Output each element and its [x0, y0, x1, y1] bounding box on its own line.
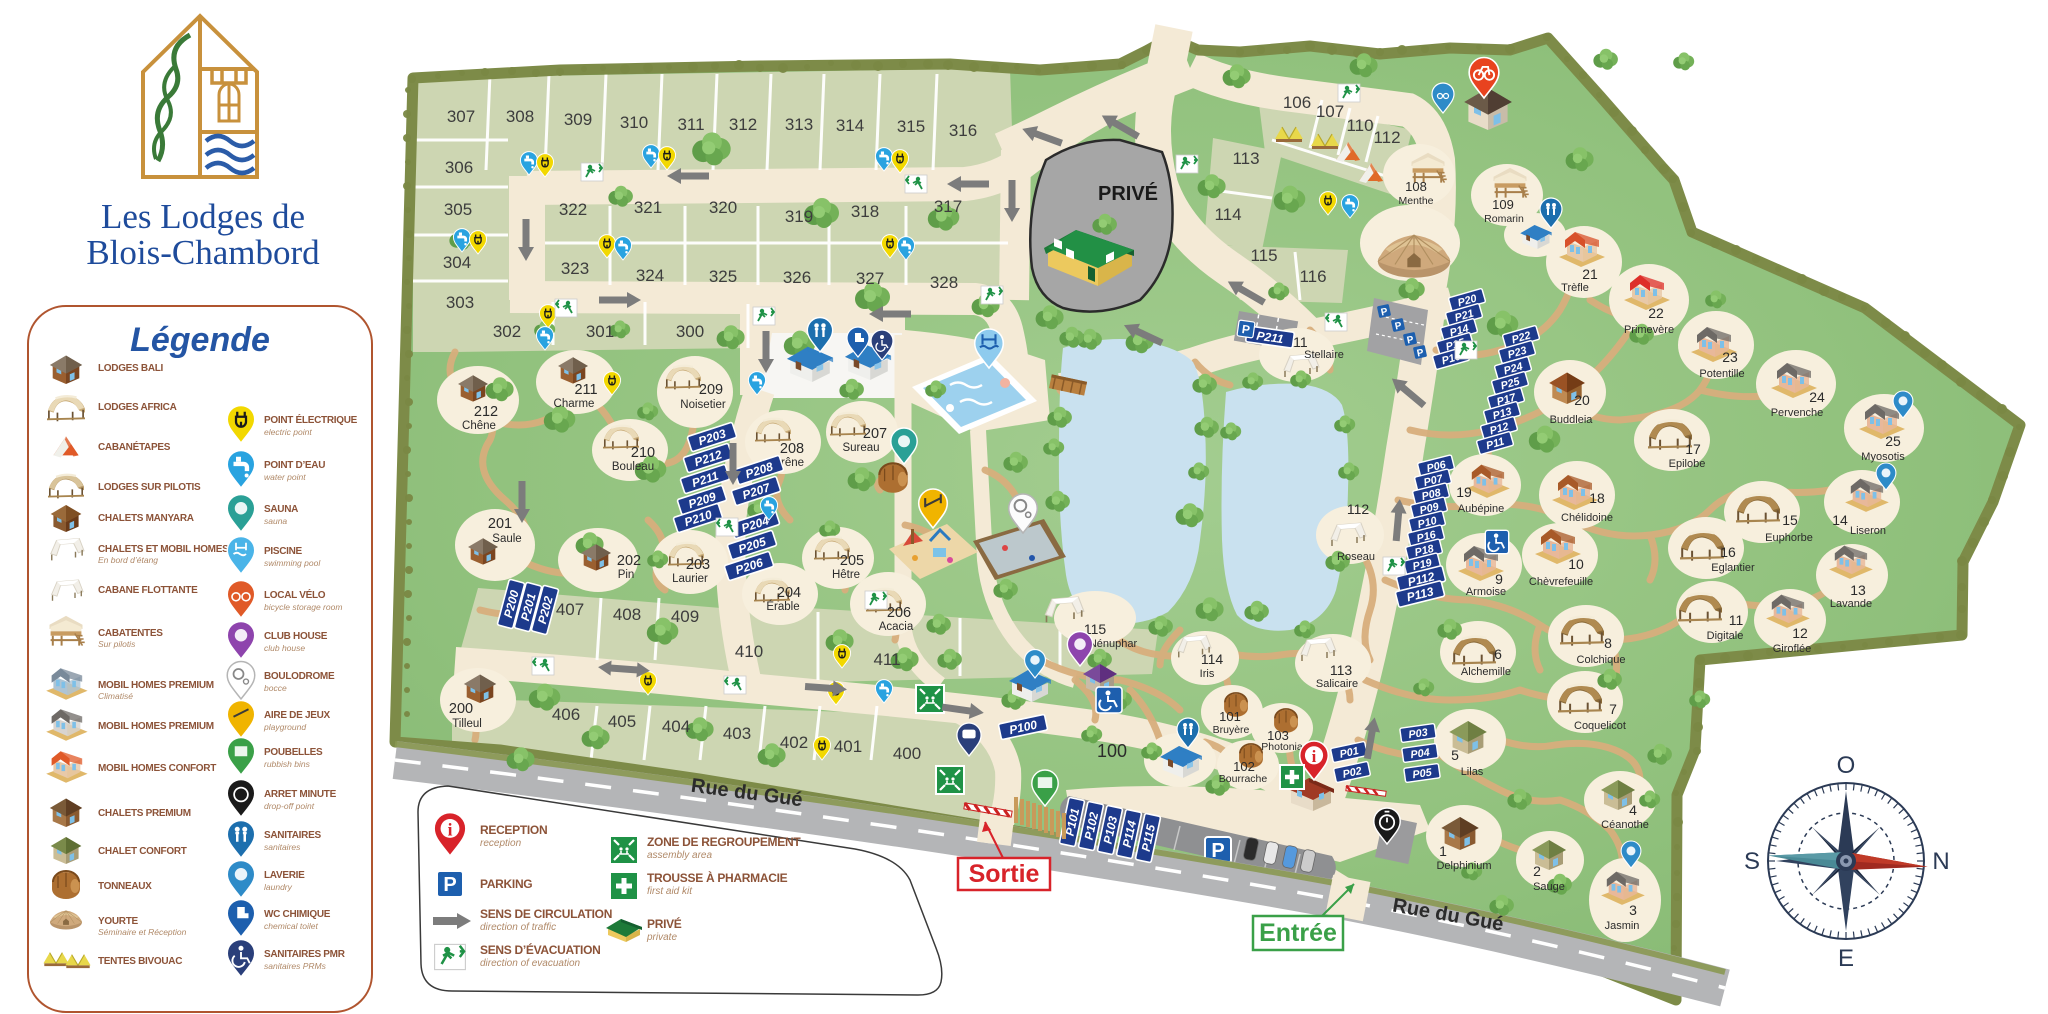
svg-text:Pervenche: Pervenche — [1771, 407, 1824, 419]
svg-text:SANITAIRES: SANITAIRES — [264, 830, 321, 841]
svg-text:CABATENTES: CABATENTES — [98, 628, 163, 639]
svg-text:304: 304 — [443, 253, 471, 272]
svg-text:Céanothe: Céanothe — [1601, 819, 1649, 831]
svg-text:323: 323 — [561, 259, 589, 278]
svg-text:E: E — [1838, 945, 1854, 972]
svg-text:Hêtre: Hêtre — [832, 569, 860, 581]
svg-text:Érable: Érable — [766, 600, 799, 613]
svg-text:401: 401 — [834, 737, 862, 756]
svg-text:SENS DE CIRCULATION: SENS DE CIRCULATION — [480, 907, 612, 921]
svg-text:YOURTE: YOURTE — [98, 916, 139, 927]
svg-text:301: 301 — [586, 322, 614, 341]
svg-text:N: N — [1932, 848, 1949, 875]
svg-text:14: 14 — [1832, 512, 1848, 528]
svg-text:bocce: bocce — [264, 683, 287, 693]
svg-text:324: 324 — [636, 266, 664, 285]
svg-text:Myosotis: Myosotis — [1861, 451, 1905, 463]
svg-text:Légende: Légende — [130, 321, 270, 359]
svg-text:PISCINE: PISCINE — [264, 546, 303, 557]
svg-text:322: 322 — [559, 200, 587, 219]
svg-text:POINT D’EAU: POINT D’EAU — [264, 460, 325, 471]
svg-text:POUBELLES: POUBELLES — [264, 747, 323, 758]
svg-text:Pin: Pin — [618, 569, 635, 581]
svg-text:305: 305 — [444, 200, 472, 219]
svg-text:203: 203 — [686, 557, 710, 573]
svg-text:206: 206 — [887, 605, 911, 621]
svg-text:20: 20 — [1574, 392, 1590, 408]
svg-text:SENS D’ÉVACUATION: SENS D’ÉVACUATION — [480, 942, 600, 957]
svg-text:drop-off point: drop-off point — [264, 801, 315, 811]
svg-text:PRIVÉ: PRIVÉ — [1098, 182, 1158, 205]
svg-text:114: 114 — [1214, 205, 1241, 224]
svg-text:Lavande: Lavande — [1830, 598, 1872, 610]
svg-text:MOBIL HOMES PREMIUM: MOBIL HOMES PREMIUM — [98, 721, 214, 732]
svg-text:7: 7 — [1609, 701, 1617, 717]
svg-text:laundry: laundry — [264, 882, 293, 892]
svg-text:306: 306 — [445, 158, 473, 177]
svg-text:313: 313 — [785, 115, 813, 134]
svg-text:12: 12 — [1792, 625, 1808, 641]
svg-text:Trèfle: Trèfle — [1561, 282, 1589, 294]
svg-text:328: 328 — [930, 273, 958, 292]
svg-text:316: 316 — [949, 121, 977, 140]
svg-text:ZONE DE REGROUPEMENT: ZONE DE REGROUPEMENT — [647, 835, 801, 849]
svg-text:410: 410 — [735, 642, 763, 661]
svg-text:Colchique: Colchique — [1577, 654, 1626, 666]
svg-text:playground: playground — [263, 722, 306, 732]
svg-text:Potentille: Potentille — [1699, 368, 1744, 380]
svg-text:Les Lodges de: Les Lodges de — [101, 197, 305, 236]
svg-text:307: 307 — [447, 107, 475, 126]
svg-text:Laurier: Laurier — [672, 573, 708, 585]
svg-text:3: 3 — [1629, 902, 1637, 918]
svg-text:Chélidoine: Chélidoine — [1561, 512, 1613, 524]
svg-text:MOBIL HOMES PREMIUM: MOBIL HOMES PREMIUM — [98, 680, 214, 691]
svg-text:i: i — [448, 820, 453, 840]
svg-text:Stellaire: Stellaire — [1304, 349, 1344, 361]
svg-text:204: 204 — [777, 585, 801, 601]
svg-text:309: 309 — [564, 110, 592, 129]
svg-text:24: 24 — [1809, 389, 1825, 405]
svg-text:107: 107 — [1316, 102, 1344, 121]
svg-text:Digitale: Digitale — [1707, 630, 1744, 642]
svg-text:406: 406 — [552, 705, 580, 724]
svg-text:bicycle storage room: bicycle storage room — [264, 602, 342, 612]
svg-text:Menthe: Menthe — [1398, 195, 1433, 207]
svg-text:POINT ÉLECTRIQUE: POINT ÉLECTRIQUE — [264, 413, 358, 426]
svg-text:swimming pool: swimming pool — [264, 558, 321, 568]
svg-text:403: 403 — [723, 724, 751, 743]
svg-text:CHALET CONFORT: CHALET CONFORT — [98, 846, 187, 857]
svg-text:112: 112 — [1373, 128, 1400, 147]
svg-text:409: 409 — [671, 607, 699, 626]
svg-text:102: 102 — [1233, 759, 1255, 774]
svg-text:208: 208 — [780, 441, 804, 457]
svg-text:202: 202 — [617, 553, 641, 569]
svg-text:Giroflée: Giroflée — [1773, 643, 1812, 655]
svg-text:Noisetier: Noisetier — [680, 399, 726, 411]
svg-text:Climatisé: Climatisé — [98, 691, 133, 701]
svg-text:21: 21 — [1582, 266, 1598, 282]
svg-text:Iris: Iris — [1200, 668, 1215, 680]
svg-text:Armoise: Armoise — [1466, 586, 1506, 598]
svg-text:116: 116 — [1299, 267, 1326, 286]
svg-text:108: 108 — [1405, 179, 1427, 194]
svg-text:CHALETS PREMIUM: CHALETS PREMIUM — [98, 808, 191, 819]
svg-text:Buddleia: Buddleia — [1550, 414, 1594, 426]
svg-text:18: 18 — [1589, 490, 1605, 506]
svg-text:207: 207 — [863, 426, 887, 442]
svg-text:TROUSSE À PHARMACIE: TROUSSE À PHARMACIE — [647, 870, 788, 885]
svg-text:405: 405 — [608, 712, 636, 731]
svg-text:Salicaire: Salicaire — [1316, 678, 1358, 690]
svg-text:En bord d’étang: En bord d’étang — [98, 555, 158, 565]
svg-text:Epilobe: Epilobe — [1669, 458, 1706, 470]
svg-text:110: 110 — [1346, 116, 1373, 135]
svg-text:402: 402 — [780, 733, 808, 752]
svg-text:BOULODROME: BOULODROME — [264, 671, 335, 682]
svg-text:Acacia: Acacia — [879, 621, 914, 633]
svg-text:302: 302 — [493, 322, 521, 341]
svg-text:Entrée: Entrée — [1259, 919, 1337, 947]
svg-text:LOCAL VÉLO: LOCAL VÉLO — [264, 588, 326, 601]
svg-text:326: 326 — [783, 268, 811, 287]
svg-text:Romarin: Romarin — [1484, 213, 1524, 225]
svg-text:Charme: Charme — [554, 398, 595, 410]
svg-text:15: 15 — [1782, 512, 1798, 528]
svg-text:310: 310 — [620, 113, 648, 132]
svg-text:Lilas: Lilas — [1461, 766, 1484, 778]
svg-text:Sur pilotis: Sur pilotis — [98, 639, 136, 649]
svg-text:WC CHIMIQUE: WC CHIMIQUE — [264, 909, 331, 920]
svg-text:22: 22 — [1648, 305, 1664, 321]
svg-text:LODGES AFRICA: LODGES AFRICA — [98, 402, 177, 413]
svg-text:CHALETS MANYARA: CHALETS MANYARA — [98, 513, 194, 524]
svg-text:Jasmin: Jasmin — [1605, 920, 1640, 932]
svg-text:TONNEAUX: TONNEAUX — [98, 881, 152, 892]
svg-text:321: 321 — [634, 198, 662, 217]
svg-text:109: 109 — [1492, 197, 1514, 212]
svg-text:CABANÉTAPES: CABANÉTAPES — [98, 440, 171, 453]
svg-text:106: 106 — [1283, 93, 1311, 112]
svg-text:first aid kit: first aid kit — [647, 886, 693, 897]
svg-text:PARKING: PARKING — [480, 877, 532, 891]
svg-text:rubbish bins: rubbish bins — [264, 759, 311, 769]
svg-text:Bruyère: Bruyère — [1213, 724, 1250, 736]
svg-text:16: 16 — [1720, 544, 1736, 560]
svg-text:Chèvrefeuille: Chèvrefeuille — [1529, 576, 1593, 588]
svg-text:113: 113 — [1330, 662, 1353, 678]
svg-text:MOBIL HOMES CONFORT: MOBIL HOMES CONFORT — [98, 763, 216, 774]
svg-text:Nénuphar: Nénuphar — [1089, 638, 1138, 650]
svg-text:S: S — [1744, 848, 1760, 875]
svg-text:308: 308 — [506, 107, 534, 126]
svg-text:201: 201 — [488, 516, 512, 532]
svg-text:P: P — [443, 874, 456, 896]
svg-text:Bouleau: Bouleau — [612, 461, 654, 473]
svg-text:O: O — [1837, 752, 1856, 779]
svg-text:17: 17 — [1685, 441, 1701, 457]
svg-text:300: 300 — [676, 322, 704, 341]
svg-text:114: 114 — [1201, 651, 1224, 667]
svg-text:Saule: Saule — [492, 533, 521, 545]
svg-text:5: 5 — [1451, 747, 1459, 763]
svg-text:Alchemille: Alchemille — [1461, 666, 1511, 678]
svg-text:SAUNA: SAUNA — [264, 504, 298, 515]
svg-text:407: 407 — [556, 600, 584, 619]
svg-text:210: 210 — [631, 445, 655, 461]
svg-text:318: 318 — [851, 202, 879, 221]
svg-text:209: 209 — [699, 382, 723, 398]
svg-text:320: 320 — [709, 198, 737, 217]
svg-text:10: 10 — [1568, 556, 1584, 572]
svg-text:SANITAIRES PMR: SANITAIRES PMR — [264, 949, 346, 960]
svg-text:sanitaires: sanitaires — [264, 842, 301, 852]
svg-text:317: 317 — [934, 197, 962, 216]
svg-text:303: 303 — [446, 293, 474, 312]
svg-text:CABANE FLOTTANTE: CABANE FLOTTANTE — [98, 585, 198, 596]
svg-text:Liseron: Liseron — [1850, 525, 1886, 537]
svg-text:311: 311 — [677, 115, 704, 134]
svg-text:9: 9 — [1495, 571, 1503, 587]
svg-text:101: 101 — [1219, 709, 1241, 724]
svg-text:water point: water point — [264, 472, 306, 482]
svg-text:club house: club house — [264, 643, 305, 653]
svg-text:211: 211 — [574, 382, 597, 398]
svg-text:112: 112 — [1347, 501, 1370, 517]
svg-text:23: 23 — [1722, 349, 1738, 365]
svg-text:319: 319 — [785, 207, 813, 226]
svg-text:Photonia: Photonia — [1261, 741, 1303, 753]
svg-text:sauna: sauna — [264, 516, 287, 526]
svg-text:i: i — [1312, 747, 1317, 766]
svg-text:Delphinium: Delphinium — [1436, 860, 1491, 872]
svg-text:Roseau: Roseau — [1337, 551, 1375, 563]
svg-text:LAVERIE: LAVERIE — [264, 870, 305, 881]
svg-text:private: private — [646, 932, 677, 943]
svg-text:RECEPTION: RECEPTION — [480, 823, 547, 837]
svg-text:AIRE DE JEUX: AIRE DE JEUX — [264, 710, 330, 721]
svg-text:2: 2 — [1533, 863, 1541, 879]
svg-text:Tilleul: Tilleul — [452, 718, 482, 730]
svg-text:LODGES BALI: LODGES BALI — [98, 363, 164, 374]
svg-text:sanitaires PRMs: sanitaires PRMs — [264, 961, 327, 971]
svg-text:19: 19 — [1456, 484, 1472, 500]
svg-text:404: 404 — [662, 717, 690, 736]
svg-text:Sauge: Sauge — [1533, 881, 1565, 893]
svg-text:205: 205 — [840, 553, 864, 569]
svg-text:200: 200 — [449, 701, 473, 717]
svg-text:Séminaire et Réception: Séminaire et Réception — [98, 927, 187, 937]
svg-text:100: 100 — [1097, 741, 1127, 761]
svg-text:314: 314 — [836, 116, 864, 135]
svg-text:Blois-Chambord: Blois-Chambord — [86, 233, 320, 272]
svg-text:Bourrache: Bourrache — [1219, 773, 1268, 785]
svg-text:11: 11 — [1729, 612, 1744, 628]
svg-text:PRIVÉ: PRIVÉ — [647, 916, 682, 931]
svg-text:Primevère: Primevère — [1624, 324, 1674, 336]
svg-text:6: 6 — [1494, 646, 1502, 662]
svg-text:1: 1 — [1439, 843, 1447, 859]
svg-text:Euphorbe: Euphorbe — [1765, 532, 1813, 544]
svg-text:25: 25 — [1885, 433, 1901, 449]
svg-text:327: 327 — [856, 269, 884, 288]
svg-text:8: 8 — [1604, 635, 1612, 651]
svg-text:Chêne: Chêne — [462, 420, 496, 432]
svg-text:Coquelicot: Coquelicot — [1574, 720, 1626, 732]
svg-text:113: 113 — [1232, 149, 1259, 168]
svg-text:Eglantier: Eglantier — [1711, 562, 1755, 574]
svg-text:reception: reception — [480, 838, 522, 849]
svg-text:Aubépine: Aubépine — [1458, 503, 1505, 515]
svg-text:312: 312 — [729, 115, 757, 134]
svg-text:CLUB HOUSE: CLUB HOUSE — [264, 631, 328, 642]
svg-text:4: 4 — [1629, 802, 1637, 818]
svg-text:LODGES SUR PILOTIS: LODGES SUR PILOTIS — [98, 482, 201, 493]
svg-text:CHALETS ET MOBIL HOMES: CHALETS ET MOBIL HOMES — [98, 544, 229, 555]
svg-text:TENTES BIVOUAC: TENTES BIVOUAC — [98, 956, 182, 967]
svg-text:400: 400 — [893, 744, 921, 763]
svg-text:chemical toilet: chemical toilet — [264, 921, 318, 931]
svg-text:325: 325 — [709, 267, 737, 286]
svg-text:electric point: electric point — [264, 427, 312, 437]
svg-text:direction of evacuation: direction of evacuation — [480, 958, 581, 969]
svg-text:408: 408 — [613, 605, 641, 624]
svg-text:13: 13 — [1850, 582, 1866, 598]
svg-text:Sureau: Sureau — [842, 442, 879, 454]
svg-text:Sortie: Sortie — [969, 860, 1040, 888]
svg-text:115: 115 — [1250, 246, 1277, 265]
svg-text:direction of traffic: direction of traffic — [480, 922, 556, 933]
svg-text:assembly area: assembly area — [647, 850, 712, 861]
svg-text:212: 212 — [474, 404, 498, 420]
svg-text:411: 411 — [873, 650, 900, 669]
svg-text:ARRET MINUTE: ARRET MINUTE — [264, 789, 337, 800]
svg-text:315: 315 — [897, 117, 925, 136]
